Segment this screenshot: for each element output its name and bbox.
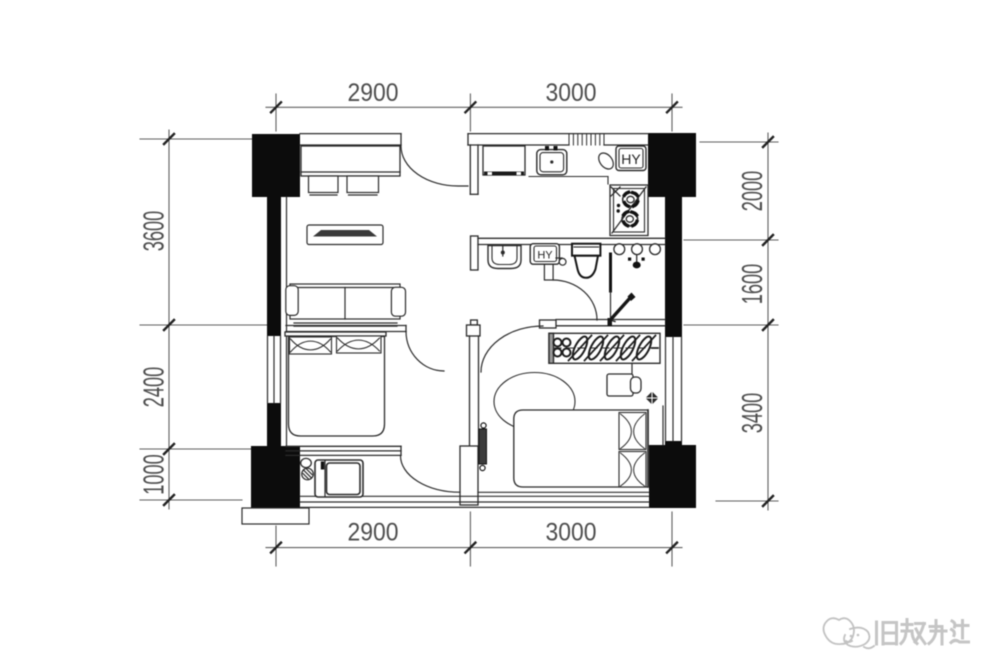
svg-text:2900: 2900 (348, 519, 399, 547)
svg-text:HY: HY (621, 151, 641, 167)
svg-text:HY: HY (537, 250, 553, 262)
svg-text:3600: 3600 (139, 211, 171, 252)
svg-text:3000: 3000 (546, 519, 597, 547)
svg-text:1600: 1600 (737, 264, 769, 305)
svg-text:2400: 2400 (139, 367, 171, 408)
svg-text:3000: 3000 (546, 79, 597, 107)
svg-text:3400: 3400 (737, 393, 769, 434)
svg-text:1000: 1000 (139, 454, 171, 495)
svg-text:2900: 2900 (348, 79, 399, 107)
svg-text:2000: 2000 (737, 171, 769, 212)
